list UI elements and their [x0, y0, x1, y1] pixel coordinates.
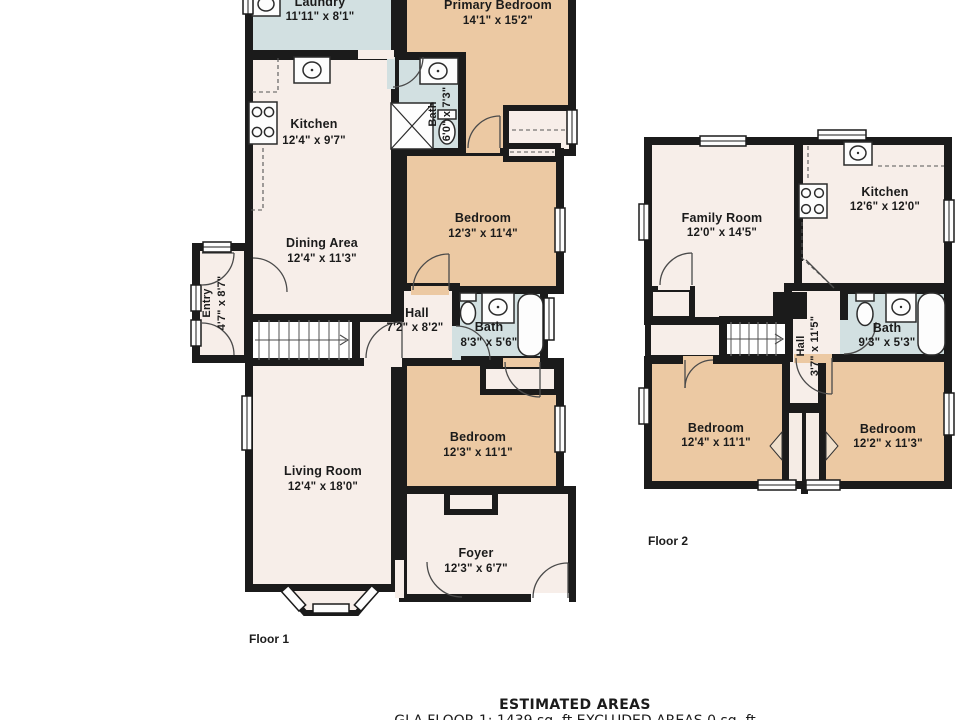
room-label-primary-bath-name: Bath [427, 101, 439, 126]
room-label-dining-dims: 12'4" x 11'3" [287, 253, 357, 265]
room-label-bath2-name: Bath [873, 321, 902, 335]
window [639, 388, 649, 424]
room-label-bedroom-left-dims: 12'4" x 11'1" [681, 437, 751, 449]
room-label-bedroom2-name: Bedroom [455, 211, 511, 225]
room-label-entry-dims: 4'7" x 8'7" [216, 276, 228, 331]
window [544, 298, 554, 340]
bath2-sink-icon [886, 293, 916, 322]
window [639, 204, 649, 240]
window [758, 480, 796, 490]
bathtub-icon [518, 294, 543, 356]
toilet2-icon [856, 293, 874, 326]
room-label-hall-dims: 7'2" x 8'2" [387, 322, 444, 334]
room-label-foyer-dims: 12'3" x 6'7" [444, 563, 508, 575]
closet-bedroom3 [483, 366, 557, 392]
room-label-bath2-dims: 9'3" x 5'3" [859, 337, 916, 349]
floor2-label: Floor 2 [648, 534, 688, 548]
window [243, 0, 253, 14]
room-label-entry-name: Entry [201, 288, 213, 318]
estimated-areas-line1: GLA FLOOR 1: 1439 sq. ft EXCLUDED AREAS … [394, 713, 756, 720]
room-label-kitchen2-dims: 12'6" x 12'0" [850, 201, 920, 213]
floorplan-canvas: Laundry 11'11" x 8'1" Primary Bedroom 14… [0, 0, 960, 720]
room-label-kitchen-name: Kitchen [290, 117, 337, 131]
window [555, 406, 565, 452]
window [818, 130, 866, 140]
kitchen-sink-icon [294, 57, 330, 83]
room-label-laundry-name: Laundry [295, 0, 346, 9]
room-label-foyer-name: Foyer [458, 546, 493, 560]
room-label-laundry-dims: 11'11" x 8'1" [286, 11, 355, 23]
room-label-bedroom-left-name: Bedroom [688, 421, 744, 435]
window [700, 136, 746, 146]
room-label-family-name: Family Room [682, 211, 763, 225]
room-label-hall2-name: Hall [795, 336, 807, 357]
room-label-bedroom3-dims: 12'3" x 11'1" [443, 447, 513, 459]
window [313, 604, 349, 613]
bathtub2-icon [918, 293, 945, 355]
window [567, 110, 577, 144]
floor2-plan: Family Room 12'0" x 14'5" Kitchen 12'6" … [639, 130, 954, 548]
room-label-primary-bath-dims: 6'0" x 7'3" [441, 87, 453, 142]
window [944, 200, 954, 242]
room-label-dining-name: Dining Area [286, 236, 359, 250]
room-label-bath-dims: 8'3" x 5'6" [461, 337, 518, 349]
laundry-sink-icon [252, 0, 280, 16]
hall-lower [648, 322, 723, 358]
toilet-icon [460, 293, 476, 324]
estimated-areas-title: ESTIMATED AREAS [499, 697, 651, 713]
room-label-living-name: Living Room [284, 464, 362, 478]
window [242, 396, 252, 450]
closet-family [650, 289, 692, 319]
room-label-bedroom2-dims: 12'3" x 11'4" [448, 228, 518, 240]
room-label-primary-dims: 14'1" x 15'2" [463, 15, 533, 27]
window [191, 285, 201, 311]
window [203, 242, 231, 252]
window [191, 320, 201, 346]
room-label-kitchen2-name: Kitchen [861, 185, 908, 199]
room-label-bedroom-right-dims: 12'2" x 11'3" [853, 438, 923, 450]
room-label-bedroom-right-name: Bedroom [860, 422, 916, 436]
floor1-label: Floor 1 [249, 632, 289, 646]
room-label-hall-name: Hall [405, 306, 429, 320]
stove-icon [249, 102, 277, 144]
primary-bath-sink-icon [420, 58, 458, 84]
window [555, 208, 565, 252]
room-kitchen-dining [249, 56, 395, 318]
closet-foyer [447, 492, 495, 512]
wall-post [773, 292, 807, 319]
stove2-icon [799, 184, 827, 218]
room-label-bath-name: Bath [475, 320, 504, 334]
window [944, 393, 954, 435]
room-label-primary-name: Primary Bedroom [444, 0, 552, 12]
room-label-family-dims: 12'0" x 14'5" [687, 227, 757, 239]
room-label-living-dims: 12'4" x 18'0" [288, 481, 358, 493]
room-label-bedroom3-name: Bedroom [450, 430, 506, 444]
room-label-hall2-dims: 3'7" x 11'5" [809, 316, 821, 376]
room-label-kitchen-dims: 12'4" x 9'7" [282, 135, 346, 147]
bath-sink-icon [482, 293, 514, 323]
floor1-plan: Laundry 11'11" x 8'1" Primary Bedroom 14… [191, 0, 577, 646]
kitchen2-sink-icon [844, 142, 872, 165]
window [806, 480, 840, 490]
